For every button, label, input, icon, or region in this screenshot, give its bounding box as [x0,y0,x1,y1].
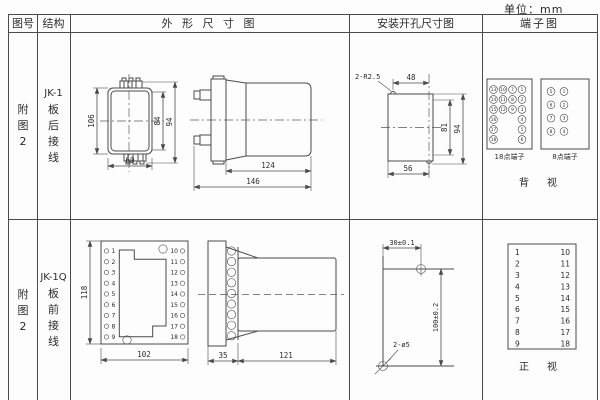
jk1-outline-drawing: 106 84 94 60 [70,32,349,219]
jk1q-drill-pattern [375,256,454,374]
dim-60: 60 [125,156,135,165]
terminal-block-18: 13 10 7 1 14 11 8 2 15 12 9 3 16 4 17 5 … [487,79,532,161]
fig-label-row1: 附 图 2 [9,32,37,219]
dim-124: 124 [261,161,275,170]
svg-text:7: 7 [515,317,520,326]
svg-text:7: 7 [550,116,553,122]
jk1-terminal-diagram: 13 10 7 1 14 11 8 2 15 12 9 3 16 4 17 5 … [482,32,597,219]
structure-label-jk1: JK-1 板 后 接 线 [37,32,70,219]
svg-text:3: 3 [112,270,116,277]
svg-text:13: 13 [170,280,178,287]
svg-text:2: 2 [521,97,524,103]
svg-text:7: 7 [511,87,514,93]
svg-text:4: 4 [563,129,566,135]
terminal-block-8: 5 1 6 2 7 3 8 4 8点端子 [541,79,589,161]
svg-text:5: 5 [112,291,116,298]
svg-text:5: 5 [550,89,553,95]
svg-text:6: 6 [112,302,116,309]
svg-text:2: 2 [112,259,116,266]
header-terminal: 端子图 [482,15,597,32]
svg-text:13: 13 [560,282,570,291]
dim-94: 94 [165,117,174,127]
svg-text:11: 11 [560,260,570,269]
dim-94: 94 [453,124,462,134]
svg-text:5: 5 [515,294,520,303]
dim-30: 30±0.1 [389,239,414,247]
svg-text:14: 14 [491,97,497,103]
terminal-18-label: 18点端子 [495,152,525,161]
svg-text:4: 4 [521,117,524,123]
dim-84: 84 [153,116,162,126]
svg-text:16: 16 [560,317,570,326]
svg-text:9: 9 [112,334,116,341]
svg-text:5: 5 [521,127,524,133]
svg-text:1: 1 [112,248,116,255]
structure-label-jk1q: JK-1Q 板 前 接 线 [37,219,70,400]
svg-text:8: 8 [550,129,553,135]
svg-text:9: 9 [515,339,520,348]
svg-text:18: 18 [491,137,497,143]
view-label-front: 正 视 [519,360,561,373]
svg-text:3: 3 [515,271,520,280]
svg-text:1: 1 [515,248,520,257]
svg-text:11: 11 [170,259,178,266]
svg-text:8: 8 [112,323,116,330]
svg-text:6: 6 [521,137,524,143]
svg-text:16: 16 [491,117,497,123]
svg-text:17: 17 [170,323,178,330]
dim-81: 81 [440,123,449,132]
svg-text:11: 11 [500,97,506,103]
jk1q-front-terminals: 1 2 3 4 5 6 7 8 9 10 11 12 13 14 15 16 1… [104,248,184,341]
svg-text:8: 8 [511,97,514,103]
jk1q-install-hole-drawing: 30±0.1 100±0.2 2-ø5 [349,219,482,400]
svg-text:1: 1 [563,89,566,95]
svg-text:10: 10 [500,87,506,93]
svg-text:1: 1 [521,87,524,93]
svg-text:4: 4 [515,282,520,291]
jk1q-outline-drawing: 1 2 3 4 5 6 7 8 9 10 11 12 13 14 15 16 1… [70,219,349,400]
dimension-table: 图号 结构 外 形 尺 寸 图 安装开孔尺寸图 端子图 附 图 2 JK-1 板… [8,14,598,400]
svg-text:9: 9 [511,107,514,113]
svg-text:18: 18 [560,339,570,348]
svg-text:12: 12 [500,107,506,113]
svg-text:6: 6 [550,102,553,108]
jk1-side-dims: 124 146 [194,146,311,191]
svg-text:16: 16 [170,313,178,320]
header-structure: 结构 [37,15,70,32]
radius-note: 2-R2.5 [355,73,380,81]
dim-118: 118 [80,285,89,299]
dim-106: 106 [87,114,96,128]
header-fig: 图号 [9,15,37,32]
svg-text:17: 17 [491,127,497,133]
fig-label-row2: 附 图 2 [9,219,37,400]
svg-text:15: 15 [491,107,497,113]
jk1q-terminal-diagram: 1 2 3 4 5 6 7 8 9 10 11 12 13 14 15 16 1… [482,219,597,400]
svg-text:2: 2 [515,260,520,269]
dim-35: 35 [218,351,227,360]
svg-text:10: 10 [170,248,178,255]
view-label-rear: 背 视 [519,176,561,189]
svg-text:10: 10 [560,248,570,257]
svg-text:7: 7 [112,313,116,320]
dim-48: 48 [406,73,416,82]
dim-100: 100±0.2 [432,303,440,333]
svg-text:2: 2 [563,102,566,108]
svg-text:12: 12 [170,270,178,277]
svg-text:14: 14 [170,291,178,298]
svg-text:8: 8 [515,328,520,337]
svg-text:18: 18 [170,334,178,341]
header-outline: 外 形 尺 寸 图 [70,15,349,32]
terminal-list-numbers: 1 2 3 4 5 6 7 8 9 10 11 12 13 14 15 16 1… [515,248,570,348]
svg-text:13: 13 [491,87,497,93]
svg-text:14: 14 [560,294,570,303]
svg-text:15: 15 [170,302,178,309]
jk1-install-dims: 2-R2.5 48 81 94 56 [355,73,467,178]
dim-146: 146 [246,177,260,186]
svg-text:17: 17 [560,328,570,337]
svg-text:3: 3 [521,107,524,113]
svg-text:4: 4 [112,280,116,287]
svg-text:3: 3 [563,116,566,122]
jk1q-side-view [208,241,336,346]
jk1q-install-dims: 30±0.1 100±0.2 2-ø5 [383,239,441,366]
hole-note: 2-ø5 [393,341,410,349]
dim-56: 56 [403,164,413,173]
header-install: 安装开孔尺寸图 [349,15,482,32]
svg-text:12: 12 [560,271,570,280]
dim-121: 121 [279,351,293,360]
dim-102: 102 [137,350,151,359]
terminal-8-label: 8点端子 [552,152,577,161]
svg-text:6: 6 [515,305,520,314]
svg-text:15: 15 [560,305,570,314]
jk1-install-hole-drawing: 2-R2.5 48 81 94 56 [349,32,482,219]
document-page: 单位：mm 图号 结构 外 形 尺 寸 图 安装开孔尺寸图 端子图 附 图 2 … [0,0,600,400]
jk1-front-dims: 106 84 94 60 [87,82,178,170]
